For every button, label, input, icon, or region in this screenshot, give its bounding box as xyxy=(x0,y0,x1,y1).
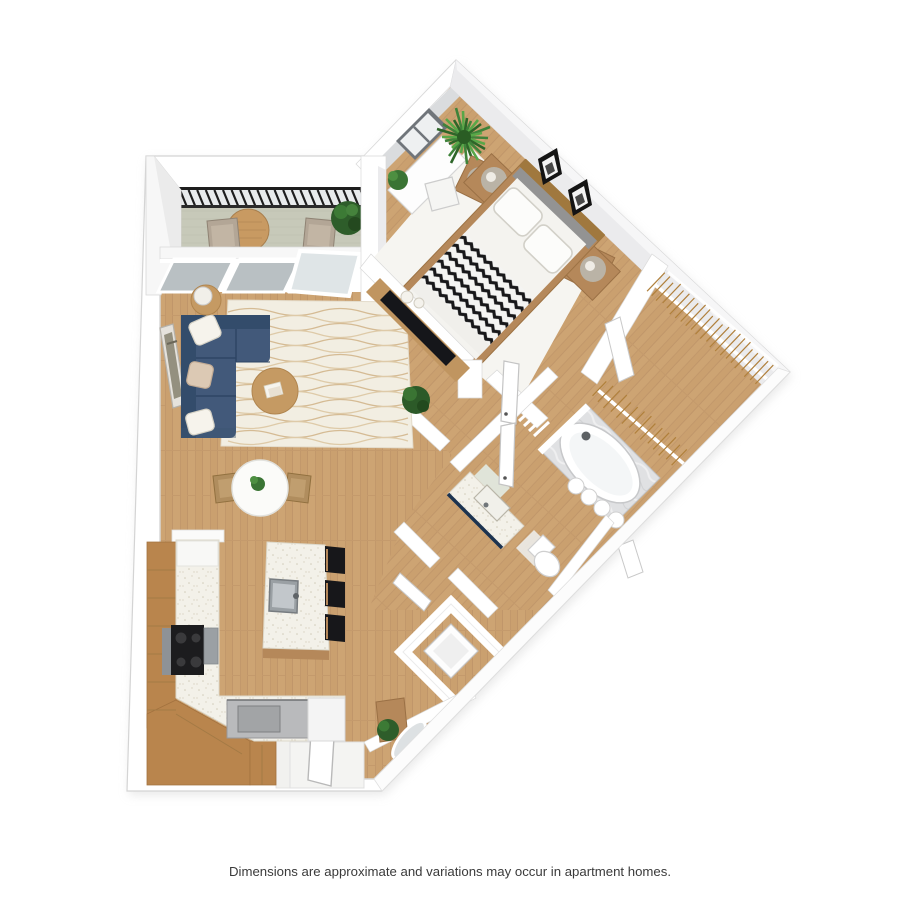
svg-text:Dimensions are approximate and: Dimensions are approximate and variation… xyxy=(229,864,671,879)
